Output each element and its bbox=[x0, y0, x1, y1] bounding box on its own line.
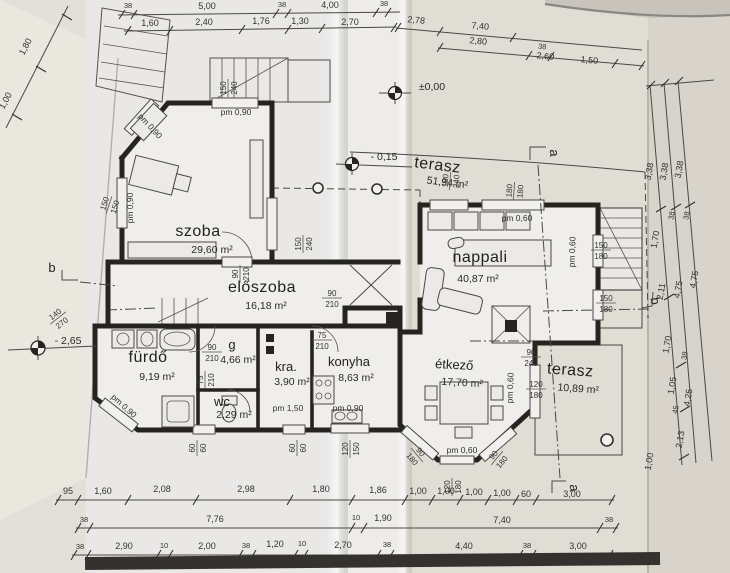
dim: 1,00 bbox=[465, 487, 483, 497]
room-label-terasz-also: terasz bbox=[546, 360, 594, 380]
dim: 10 bbox=[298, 539, 306, 548]
section-b-left: b bbox=[48, 260, 55, 275]
floor-plan-photo: szoba 29,60 m² terasz 51,94 m² nappali 4… bbox=[0, 0, 730, 573]
terrace-post bbox=[313, 183, 323, 193]
opening-dim: 180 bbox=[505, 183, 515, 197]
room-area-g: 4,66 m² bbox=[220, 354, 256, 366]
dim: 1,80 bbox=[312, 484, 330, 494]
stairs-exterior-topleft bbox=[96, 8, 170, 102]
opening-dim: 75 bbox=[318, 331, 327, 340]
room-area-etkezo: 17,70 m² bbox=[441, 376, 484, 390]
dim: 2,78 bbox=[407, 14, 425, 25]
dim: 1,30 bbox=[291, 16, 309, 26]
dim: 38 bbox=[681, 211, 691, 221]
opening-dim: 90 bbox=[328, 289, 337, 298]
dim: 10 bbox=[160, 541, 168, 550]
dim: 38 bbox=[242, 541, 250, 550]
opening-dim: 240 bbox=[305, 237, 314, 251]
szoba-cabinet bbox=[250, 140, 263, 218]
opening-dim: 240 bbox=[452, 174, 462, 188]
opening-dim: 210 bbox=[205, 354, 219, 363]
dim: 45 bbox=[670, 405, 680, 415]
room-label-g: g bbox=[228, 337, 235, 352]
opening-dim: 210 bbox=[242, 267, 251, 281]
opening-dim: 150 bbox=[294, 237, 303, 251]
dim: 2,90 bbox=[115, 541, 133, 551]
dim: 38 bbox=[605, 515, 613, 524]
dim: 38 bbox=[76, 542, 84, 551]
pm-label: pm 0,60 bbox=[566, 236, 577, 267]
room-label-szoba: szoba bbox=[175, 223, 220, 240]
dim: 2,00 bbox=[198, 541, 216, 551]
room-label-furdo: fürdő bbox=[129, 349, 168, 366]
dim: 1,50 bbox=[580, 54, 598, 65]
elevation-ground: ±0,00 bbox=[419, 81, 445, 93]
room-area-furdo: 9,19 m² bbox=[139, 371, 175, 383]
opening-dim: 210 bbox=[315, 342, 329, 351]
opening-dim: 180 bbox=[529, 391, 543, 400]
dim: 7,40 bbox=[493, 515, 511, 525]
pm-label: pm 1,50 bbox=[273, 403, 304, 413]
opening-dim: 90 bbox=[527, 348, 536, 357]
dim: 2,08 bbox=[153, 484, 171, 494]
opening-dim: 240 bbox=[230, 81, 239, 95]
dim: 2,70 bbox=[341, 17, 359, 27]
opening-dim: 75 bbox=[196, 375, 205, 384]
opening-dim: 60 bbox=[199, 443, 208, 452]
opening-dim: 150 bbox=[594, 241, 608, 250]
opening-dim: 90 bbox=[231, 269, 240, 278]
pillar bbox=[386, 312, 399, 325]
dim: 2,80 bbox=[469, 35, 487, 46]
dim: 1,00 bbox=[493, 488, 511, 498]
opening-dim: 60 bbox=[188, 443, 197, 452]
room-label-konyha: konyha bbox=[328, 354, 371, 369]
pm-label: pm 0,90 bbox=[221, 107, 252, 117]
opening-dim: 150 bbox=[352, 442, 361, 456]
dim: 38 bbox=[523, 541, 531, 550]
dim: 1,90 bbox=[374, 513, 392, 523]
dim: 1,76 bbox=[252, 16, 270, 26]
room-label-etkezo: étkező bbox=[435, 356, 474, 373]
dim: 3,00 bbox=[569, 541, 587, 551]
dim: 38 bbox=[380, 0, 388, 8]
dim: 38 bbox=[679, 351, 689, 361]
section-a-top: a bbox=[547, 149, 562, 158]
dim: 60 bbox=[521, 489, 531, 499]
dim: 38 bbox=[666, 211, 676, 221]
opening-dim: 150 bbox=[219, 81, 228, 95]
opening-dim: 180 bbox=[454, 480, 463, 494]
dim: 95 bbox=[63, 486, 73, 496]
room-label-nappali: nappali bbox=[452, 249, 507, 266]
elevation-terrace: - 0,15 bbox=[371, 151, 398, 163]
kamra-shelf bbox=[266, 334, 274, 342]
room-area-szoba: 29,60 m² bbox=[191, 244, 233, 256]
pm-label: pm 0,60 bbox=[504, 372, 515, 403]
dim: 10 bbox=[352, 513, 360, 522]
dim: 4,00 bbox=[321, 0, 339, 10]
opening-dim: 120 bbox=[341, 442, 350, 456]
room-area-nappali: 40,87 m² bbox=[457, 273, 499, 285]
dim: 1,20 bbox=[266, 539, 284, 549]
opening-dim: 90 bbox=[208, 343, 217, 352]
dim: 2,70 bbox=[334, 540, 352, 550]
opening-dim: 180 bbox=[441, 173, 451, 187]
opening-dim: 150 bbox=[599, 294, 613, 303]
pm-label: pm 0,90 bbox=[125, 192, 135, 223]
opening-dim: 180 bbox=[599, 305, 613, 314]
pm-label: pm 0,90 bbox=[333, 403, 364, 413]
terrace-post bbox=[372, 184, 382, 194]
dim: 38 bbox=[278, 0, 286, 9]
dim: 7,40 bbox=[471, 20, 489, 31]
room-label-wc: wc bbox=[213, 394, 230, 409]
room-area-eloszoba: 16,18 m² bbox=[245, 300, 287, 312]
opening-dim: 210 bbox=[207, 373, 216, 387]
room-area-wc: 2,29 m² bbox=[216, 409, 252, 421]
dim: 2,40 bbox=[195, 17, 213, 27]
dim: 7,76 bbox=[206, 514, 224, 524]
terrace-post bbox=[601, 434, 613, 446]
dim: 1,86 bbox=[369, 485, 387, 495]
opening-dim: 210 bbox=[325, 300, 339, 309]
room-label-kamra: kra. bbox=[275, 359, 297, 374]
dim: 38 bbox=[80, 515, 88, 524]
dim: 1,00 bbox=[437, 486, 455, 496]
dim: 38 bbox=[124, 1, 132, 10]
floor-plan-svg: szoba 29,60 m² terasz 51,94 m² nappali 4… bbox=[0, 0, 730, 573]
opening-dim: 180 bbox=[516, 184, 526, 198]
dim: 38 bbox=[383, 540, 391, 549]
dim: 1,00 bbox=[409, 486, 427, 496]
kamra-shelf bbox=[266, 346, 274, 354]
pm-label: pm 0,60 bbox=[502, 213, 533, 223]
opening-dim: 180 bbox=[594, 252, 608, 261]
dim: 5,00 bbox=[198, 1, 216, 11]
dim: 3,00 bbox=[563, 489, 581, 499]
dim: 4,40 bbox=[455, 541, 473, 551]
dim: 1,60 bbox=[141, 18, 159, 28]
opening-dim: 60 bbox=[288, 443, 297, 452]
opening-dim: 240 bbox=[524, 359, 538, 368]
opening-dim: 120 bbox=[529, 380, 543, 389]
elevation-basement: - 2,65 bbox=[55, 335, 82, 347]
dim: 2,98 bbox=[237, 484, 255, 494]
room-label-eloszoba: előszoba bbox=[228, 279, 296, 296]
opening-dim: 60 bbox=[299, 443, 308, 452]
dim: 2,60 bbox=[536, 50, 554, 61]
room-area-konyha: 8,63 m² bbox=[338, 372, 374, 384]
pm-label: pm 0,60 bbox=[447, 445, 478, 455]
room-area-kamra: 3,90 m² bbox=[274, 376, 310, 388]
dim: 1,60 bbox=[94, 486, 112, 496]
